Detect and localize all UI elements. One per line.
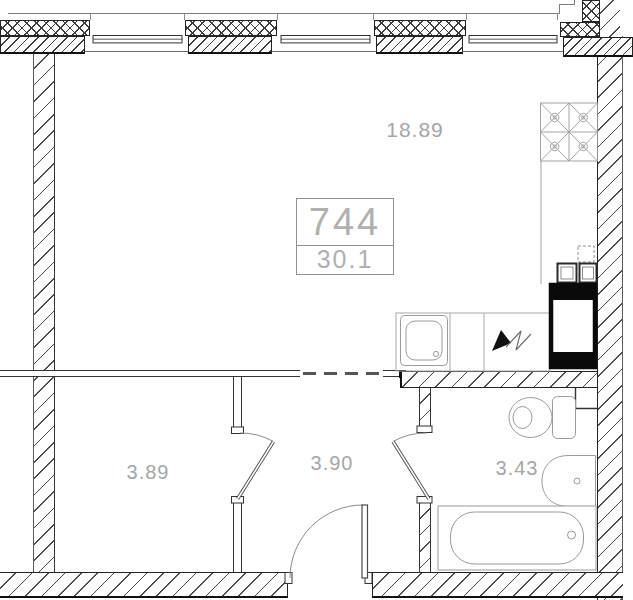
apartment-total-area: 30.1	[297, 246, 393, 273]
burner-blocks-icon	[558, 264, 597, 283]
floor-plan: 18.89 3.89 3.90 3.43 744 30.1	[0, 0, 633, 600]
vent-duct-icon	[576, 388, 598, 409]
room-area-label-storage: 3.89	[116, 461, 180, 484]
fixtures-layer	[0, 0, 633, 600]
bathroom-door-icon	[393, 433, 429, 499]
window-icon	[281, 36, 370, 43]
door-jamb	[232, 426, 433, 584]
kitchen-sink-icon	[401, 316, 448, 366]
electric-stove-symbol-icon	[492, 330, 531, 351]
washbasin-icon	[542, 456, 596, 507]
oven-icon	[550, 284, 596, 367]
entrance-door-icon	[290, 505, 368, 578]
dashed-box-icon	[578, 246, 594, 262]
room-area-label-bathroom: 3.43	[485, 457, 549, 480]
apartment-number: 744	[297, 199, 393, 246]
room-area-label-living: 18.89	[383, 118, 447, 142]
room-area-label-hallway: 3.90	[300, 452, 364, 475]
toilet-icon	[509, 397, 576, 439]
storage-door-icon	[238, 433, 274, 499]
wall-cabinets-icon	[541, 103, 598, 284]
apartment-info-box: 744 30.1	[296, 198, 394, 275]
bathtub-icon	[438, 506, 596, 570]
window-icon	[469, 36, 557, 43]
window-icon	[93, 36, 182, 43]
